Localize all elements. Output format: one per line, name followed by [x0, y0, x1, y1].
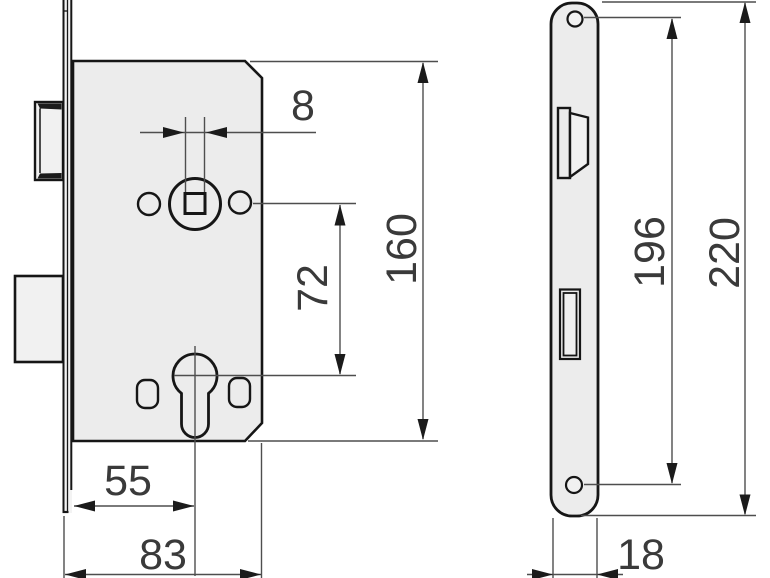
- dim-18-arrow-right: [597, 569, 618, 578]
- handle-screw-hole-right: [229, 192, 251, 214]
- dim-83-arrow-left: [65, 569, 86, 578]
- dim-18-label: 18: [617, 531, 665, 578]
- dim-196-arrow-bottom: [667, 463, 678, 484]
- dim-160-arrow-top: [418, 62, 429, 83]
- dim-196-arrow-top: [667, 18, 678, 39]
- dim-72-arrow-bottom: [335, 354, 346, 375]
- dim-faceplate-width: 18: [527, 518, 665, 578]
- dim-83-arrow-right: [240, 569, 261, 578]
- dim-18-lines: [527, 518, 623, 578]
- deadbolt-face: [564, 293, 577, 356]
- faceplate-edge-strip: [63, 0, 73, 513]
- handle-screw-hole-left: [138, 193, 160, 215]
- technical-drawing-canvas: 8 160 72 55 83: [0, 0, 770, 578]
- dim-case-height: 160: [248, 62, 438, 442]
- dim-55-arrow-left: [74, 501, 95, 512]
- screw-hole-top: [568, 12, 583, 27]
- dim-220-arrow-bottom: [740, 495, 751, 516]
- lock-dimension-drawing: 8 160 72 55 83: [0, 0, 770, 578]
- deadbolt: [15, 276, 63, 362]
- dim-160-label: 160: [378, 213, 426, 285]
- latch-opening: [558, 108, 588, 178]
- latch-bolt: [35, 102, 63, 180]
- latch-slot: [558, 108, 570, 178]
- fixing-hole-right: [229, 378, 250, 407]
- dim-196-label: 196: [626, 216, 674, 288]
- dim-72-arrow-top: [335, 205, 346, 226]
- dim-220-arrow-top: [740, 2, 751, 23]
- dim-8-label: 8: [291, 82, 315, 130]
- dim-220-label: 220: [701, 217, 749, 289]
- screw-hole-bottom: [566, 477, 582, 493]
- fixing-hole-left: [137, 380, 158, 408]
- dim-55-label: 55: [104, 457, 152, 505]
- dim-18-arrow-left: [532, 569, 553, 578]
- deadbolt-opening: [560, 290, 580, 360]
- latch-bevel-bottom: [38, 173, 62, 179]
- spindle-square-hole: [185, 194, 205, 214]
- dim-backset: 55: [74, 457, 194, 512]
- dim-160-arrow-bottom: [418, 419, 429, 440]
- faceplate-front-view: [551, 3, 598, 516]
- dim-83-label: 83: [139, 531, 187, 578]
- latch-head: [570, 113, 588, 177]
- dim-72-label: 72: [289, 264, 337, 312]
- faceplate-outline: [551, 3, 598, 516]
- dim-55-arrow-right: [173, 501, 194, 512]
